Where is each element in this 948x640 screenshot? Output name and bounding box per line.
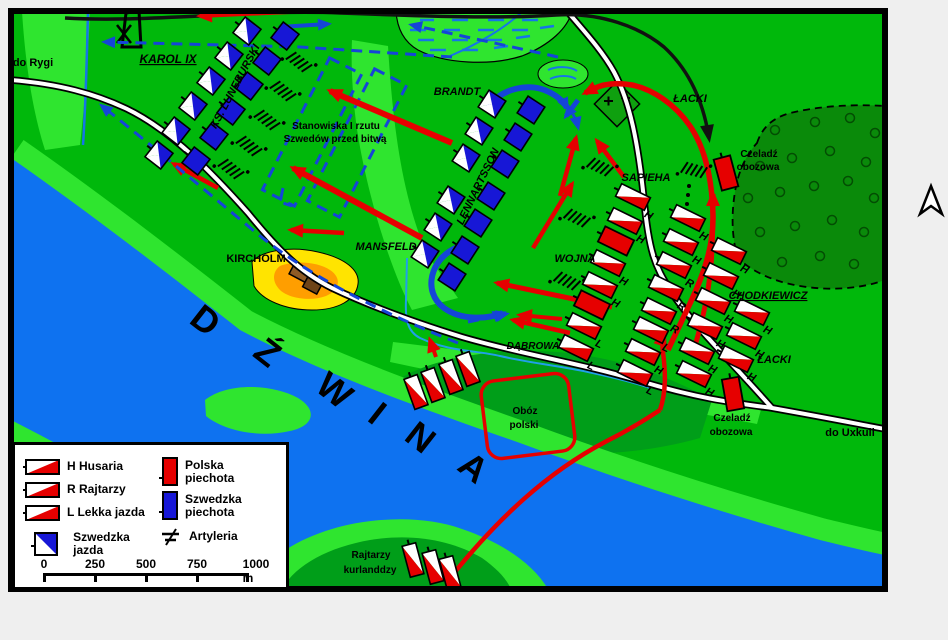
scale-label-0: 0 (41, 557, 48, 571)
legend-label: Szwedzka piechota (185, 493, 265, 518)
legend-row-lekka-jazda: L Lekka jazda (23, 501, 159, 524)
scale-label-250: 250 (85, 557, 105, 571)
husaria-symbol-icon (23, 458, 63, 476)
legend-label: Lekka jazda (77, 505, 144, 519)
rajtarzy-symbol-icon (23, 481, 63, 499)
map-label-czeladz-n-2: obozowa (737, 162, 780, 173)
map-label-karol-ix: KAROL IX (139, 52, 197, 66)
legend-row-rajtarzy: R Rajtarzy (23, 478, 159, 501)
legend-label: Polska piechota (185, 459, 265, 484)
lekka-jazda-symbol-icon (23, 504, 63, 522)
legend-row-szwedzka-piechota: Szwedzka piechota (159, 489, 284, 523)
szwedzka-piechota-symbol-icon (159, 490, 181, 522)
polska-piechota-symbol-icon (159, 456, 181, 488)
szwedzka-jazda-symbol-icon (31, 530, 69, 558)
map-label-oboz-1: Obóz (513, 406, 538, 417)
map-label-kircholm: KIRCHOLM (226, 253, 285, 265)
scale-label-500: 500 (136, 557, 156, 571)
scale-tick (43, 573, 46, 582)
map-label-czeladz-n-1: Czeladź (740, 149, 777, 160)
map-label-stanowiska-2: Szwedów przed bitwą (284, 134, 387, 145)
map-legend: H Husaria R Rajtarzy L Lekka jazda (12, 442, 289, 590)
scale-tick (246, 573, 249, 582)
map-label-stanowiska-1: Stanowiska I rzutu (292, 121, 380, 132)
battle-map-page: HHHHLLHHRRRLHLHHHHHHHHH do RygiKAROL IXK… (0, 0, 948, 640)
map-label-wojna: WOJNA (555, 253, 596, 265)
legend-label: Artyleria (189, 530, 269, 543)
map-label-rajtarzy-kurlandzcy-2: kurlanddzy (344, 565, 397, 576)
legend-tag: R (67, 482, 76, 496)
map-label-rajtarzy-kurlandzcy-1: Rajtarzy (352, 550, 391, 561)
river-ford (538, 60, 588, 88)
legend-row-szwedzka-jazda: Szwedzka jazda (23, 527, 159, 561)
map-label-mansfeld: MANSFELD (355, 241, 416, 253)
map-label-do-uxkull: do Uxkull (825, 427, 875, 439)
legend-row-artyleria: Artyleria (159, 525, 284, 548)
scale-tick (196, 573, 199, 582)
scale-bar: 0 250 500 750 1000 m (31, 557, 277, 589)
legend-tag: H (67, 459, 76, 473)
legend-label: Rajtarzy (79, 482, 126, 496)
map-label-chodkiewicz: CHODKIEWICZ (729, 290, 809, 302)
legend-row-husaria: H Husaria (23, 455, 159, 478)
map-label-czeladz-s-2: obozowa (710, 427, 753, 438)
map-label-brandt: BRANDT (434, 86, 482, 98)
scale-label-750: 750 (187, 557, 207, 571)
map-label-dabrowa: DĄBROWA (507, 341, 560, 352)
scale-tick (94, 573, 97, 582)
legend-label: Husaria (79, 459, 123, 473)
legend-row-polska-piechota: Polska piechota (159, 455, 284, 489)
map-label-lacki-east: ŁACKI (756, 354, 792, 366)
legend-tag: L (67, 505, 74, 519)
map-label-lacki-north: ŁACKI (672, 93, 708, 105)
north-arrow-icon (920, 186, 942, 214)
scale-tick (145, 573, 148, 582)
legend-label: Szwedzka jazda (73, 531, 159, 556)
map-label-sapieha: SAPIEHA (622, 172, 671, 184)
artyleria-symbol-icon (159, 528, 185, 546)
map-label-do-rygi: do Rygi (13, 57, 53, 69)
map-label-oboz-2: polski (510, 420, 539, 431)
map-label-czeladz-s-1: Czeladź (713, 413, 750, 424)
